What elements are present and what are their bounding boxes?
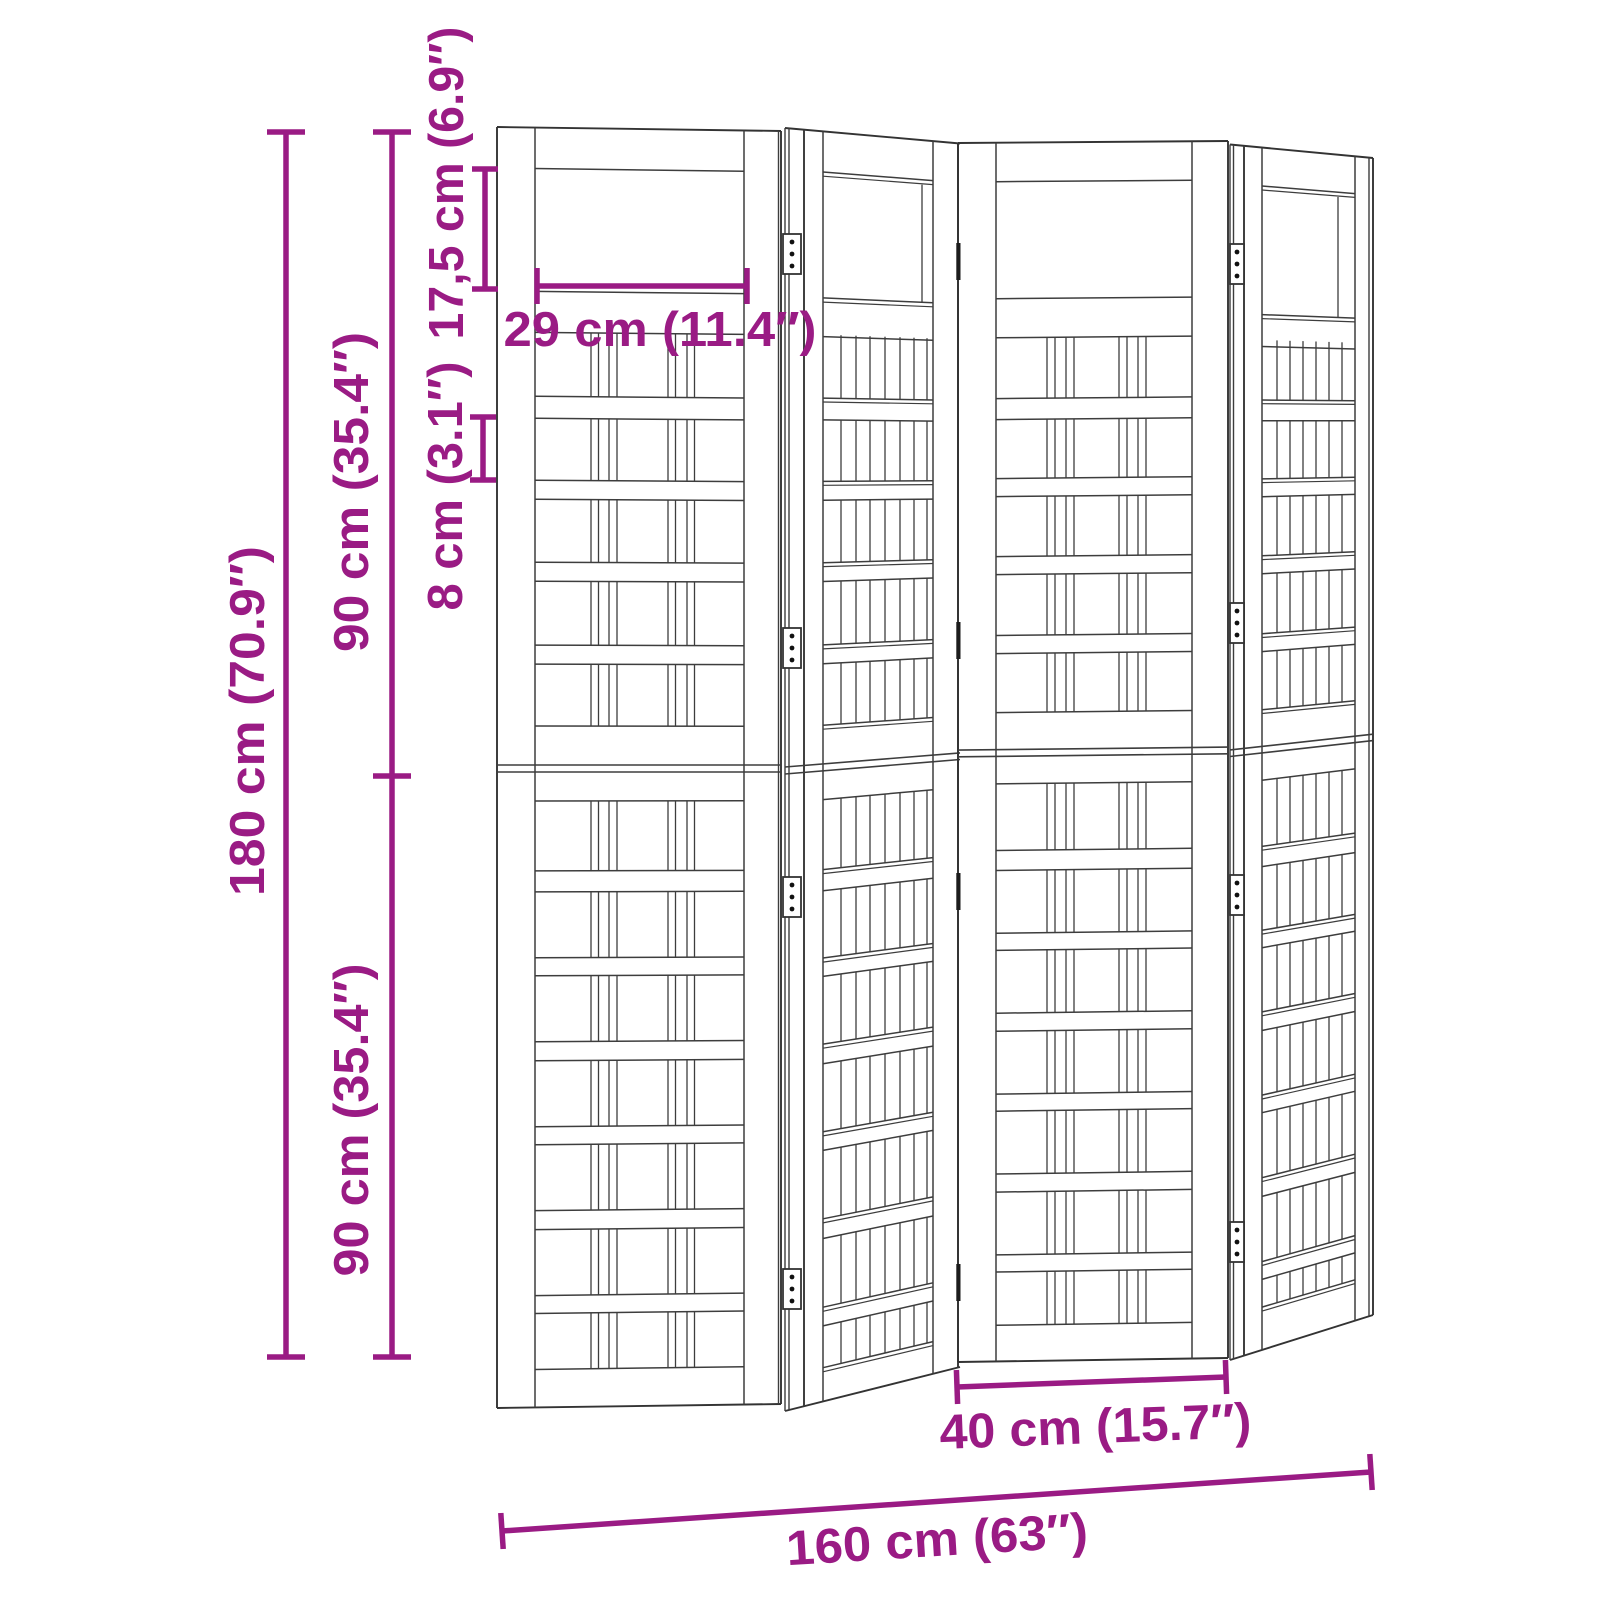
svg-text:180 cm (70.9″): 180 cm (70.9″) <box>221 546 275 896</box>
svg-text:17,5 cm (6.9″): 17,5 cm (6.9″) <box>420 27 474 340</box>
svg-text:90 cm (35.4″): 90 cm (35.4″) <box>325 332 379 652</box>
svg-text:8 cm (3.1″): 8 cm (3.1″) <box>419 362 473 611</box>
svg-text:29 cm (11.4″): 29 cm (11.4″) <box>504 303 817 357</box>
svg-text:90 cm (35.4″): 90 cm (35.4″) <box>325 964 379 1277</box>
